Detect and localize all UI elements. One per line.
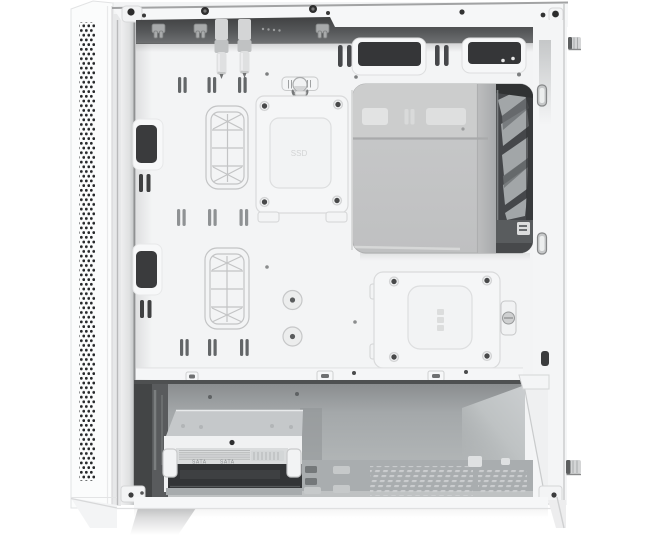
svg-text:SSD: SSD: [291, 149, 308, 158]
